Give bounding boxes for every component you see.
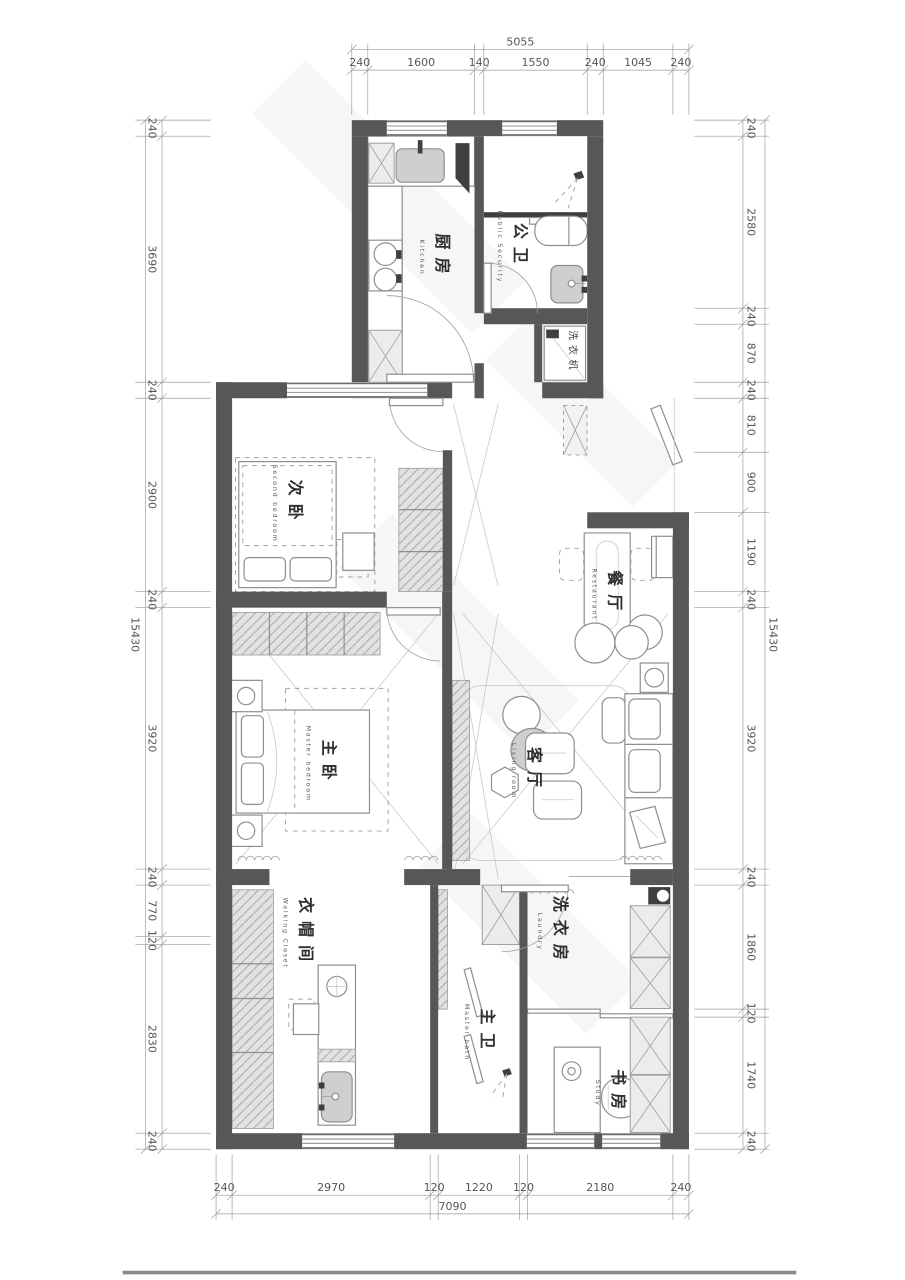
nightstand bbox=[230, 680, 262, 711]
shower-spray bbox=[568, 178, 577, 208]
room-label-en-master-bedroom: Master bedroom bbox=[304, 726, 311, 802]
dim-label: 2970 bbox=[317, 1181, 345, 1194]
dim-label: 240 bbox=[145, 1131, 158, 1152]
faucet-base bbox=[319, 1105, 325, 1111]
bath-sink bbox=[551, 266, 583, 303]
dim-label: 2180 bbox=[586, 1181, 614, 1194]
dim-label: 120 bbox=[513, 1181, 534, 1194]
wall bbox=[484, 308, 587, 324]
dim-label: 1220 bbox=[465, 1181, 493, 1194]
dining-chair bbox=[560, 548, 584, 580]
wall bbox=[404, 869, 480, 885]
tv-cabinet-hatch bbox=[452, 680, 469, 860]
dim-label: 1045 bbox=[624, 56, 652, 69]
room-label-master-bath: 主卫 bbox=[478, 1008, 497, 1056]
dim-label: 120 bbox=[145, 930, 158, 951]
pouf bbox=[615, 626, 648, 659]
bathtub bbox=[535, 216, 587, 245]
shower-spray bbox=[490, 1074, 507, 1097]
fixture-label-washing-machine: 洗衣机 bbox=[567, 330, 580, 374]
chaise bbox=[602, 698, 625, 743]
wall bbox=[534, 324, 542, 382]
kitchen-sink bbox=[396, 149, 444, 182]
kitchen-door-leaf bbox=[387, 374, 474, 382]
window bbox=[287, 382, 427, 398]
stove-knob bbox=[396, 274, 401, 283]
pouf bbox=[575, 623, 615, 663]
wall bbox=[442, 592, 452, 869]
second-bedroom-door-arc bbox=[389, 398, 442, 451]
room-label-en-public-bath: Public Security bbox=[496, 210, 503, 283]
dim-label: 240 bbox=[744, 380, 757, 401]
dim-label: 240 bbox=[145, 867, 158, 888]
window bbox=[502, 120, 557, 136]
shower-spray bbox=[502, 1074, 507, 1101]
second-bedroom-door-leaf bbox=[389, 398, 442, 405]
room-label-en-walking-closet: Walking Closet bbox=[281, 898, 288, 969]
dim-label: 120 bbox=[424, 1181, 445, 1194]
room-label-en-dining: Restaurant bbox=[591, 568, 598, 620]
sliding-door-panel bbox=[528, 1009, 601, 1013]
wall bbox=[216, 382, 232, 1149]
window bbox=[527, 1133, 594, 1149]
wall bbox=[630, 869, 673, 885]
faucet-base bbox=[582, 276, 588, 282]
wall bbox=[216, 382, 287, 398]
faucet-base bbox=[319, 1082, 325, 1088]
dim-label: 240 bbox=[744, 867, 757, 888]
floor-plan-page: 厨房Kitchen公卫Public Security次卧Second bedro… bbox=[0, 0, 905, 1280]
room-label-master-bedroom: 主卧 bbox=[319, 740, 338, 788]
room-label-laundry: 洗衣房 bbox=[551, 896, 570, 968]
room-label-en-kitchen: Kitchen bbox=[418, 240, 425, 276]
dim-label: 240 bbox=[670, 1181, 691, 1194]
dryer-door bbox=[657, 890, 669, 902]
dim-label: 240 bbox=[145, 118, 158, 139]
kitchen-faucet bbox=[418, 140, 423, 153]
room-label-kitchen: 厨房 bbox=[433, 234, 452, 282]
wall bbox=[216, 592, 387, 608]
wall bbox=[443, 450, 452, 591]
dim-label: 2830 bbox=[145, 1025, 158, 1053]
dim-label: 120 bbox=[744, 1003, 757, 1024]
room-label-en-master-bath: Master bath bbox=[463, 1004, 470, 1061]
window bbox=[602, 1133, 660, 1149]
room-label-living-room: 客厅 bbox=[525, 747, 544, 795]
wall bbox=[520, 885, 528, 1133]
dim-label: 240 bbox=[349, 56, 370, 69]
stove-knob bbox=[396, 250, 401, 259]
window bbox=[387, 120, 447, 136]
floor-plan-drawing: 厨房Kitchen公卫Public Security次卧Second bedro… bbox=[0, 0, 905, 1280]
drain bbox=[332, 1093, 339, 1100]
room-label-en-laundry: Laundry bbox=[536, 913, 543, 951]
dim-label: 2900 bbox=[145, 481, 158, 509]
wall bbox=[475, 136, 484, 313]
drain bbox=[568, 280, 575, 287]
dim-label: 1550 bbox=[522, 56, 550, 69]
dim-label: 140 bbox=[469, 56, 490, 69]
dining-shelf bbox=[652, 536, 673, 577]
room-label-study: 书房 bbox=[609, 1069, 628, 1117]
desk bbox=[554, 1047, 600, 1132]
dim-total-label: 15430 bbox=[129, 617, 142, 652]
room-label-dining: 餐厅 bbox=[606, 569, 625, 618]
room-label-walking-closet: 衣帽间 bbox=[296, 897, 315, 969]
faucet-base bbox=[582, 287, 588, 293]
wall bbox=[475, 363, 484, 398]
dim-label: 240 bbox=[145, 380, 158, 401]
wall bbox=[542, 382, 603, 398]
pillow bbox=[241, 763, 263, 804]
shower-head bbox=[574, 171, 585, 180]
dim-total-label: 5055 bbox=[506, 35, 534, 48]
pillow bbox=[290, 558, 331, 581]
dim-label: 3920 bbox=[744, 724, 757, 752]
shower-glass-hatch bbox=[438, 890, 447, 1009]
dim-label: 810 bbox=[744, 415, 757, 436]
dim-label: 240 bbox=[214, 1181, 235, 1194]
dim-label: 240 bbox=[585, 56, 606, 69]
dim-label: 1190 bbox=[744, 538, 757, 566]
washer-control bbox=[546, 330, 559, 339]
dim-label: 770 bbox=[145, 900, 158, 921]
dim-label: 240 bbox=[744, 118, 757, 139]
wardrobe-master-hatch bbox=[232, 612, 380, 655]
room-label-en-study: Study bbox=[594, 1080, 601, 1107]
dim-label: 240 bbox=[744, 1131, 757, 1152]
dim-label: 240 bbox=[744, 589, 757, 610]
dim-label: 240 bbox=[145, 589, 158, 610]
wall bbox=[352, 136, 368, 382]
master-bedroom-door-leaf bbox=[387, 608, 440, 615]
dim-label: 3920 bbox=[145, 724, 158, 752]
pillow bbox=[244, 558, 285, 581]
wardrobe-closet-hatch bbox=[232, 890, 273, 1129]
dim-label: 240 bbox=[744, 306, 757, 327]
dim-label: 1860 bbox=[744, 933, 757, 961]
room-label-en-living-room: Living room bbox=[510, 743, 517, 799]
radiator bbox=[238, 856, 279, 860]
room-label-second-bedroom: 次卧 bbox=[286, 480, 305, 528]
dim-label: 3690 bbox=[145, 245, 158, 273]
stool bbox=[293, 1004, 318, 1035]
wardrobe-second-hatch bbox=[399, 468, 443, 591]
public-bath-door-leaf bbox=[484, 263, 491, 313]
dim-total-label: 15430 bbox=[766, 617, 779, 652]
wall bbox=[587, 136, 603, 398]
room-label-public-bath: 公卫 bbox=[511, 223, 530, 271]
nightstand bbox=[343, 533, 374, 570]
dim-label: 900 bbox=[744, 472, 757, 493]
dim-label: 1740 bbox=[744, 1061, 757, 1089]
wall bbox=[427, 382, 452, 398]
room-label-en-second-bedroom: Second bedroom bbox=[271, 465, 278, 543]
pillow bbox=[241, 716, 263, 757]
wall bbox=[673, 512, 689, 1149]
dim-label: 1600 bbox=[407, 56, 435, 69]
dim-label: 240 bbox=[670, 56, 691, 69]
nightstand bbox=[230, 815, 262, 846]
dim-label: 2580 bbox=[744, 208, 757, 236]
wall bbox=[430, 885, 438, 1133]
window bbox=[302, 1133, 394, 1149]
laundry-door-leaf bbox=[502, 885, 569, 892]
dim-label: 870 bbox=[744, 343, 757, 364]
wall bbox=[216, 869, 269, 885]
counter-divider-hatch bbox=[318, 1049, 355, 1062]
dim-total-label: 7090 bbox=[439, 1200, 467, 1213]
